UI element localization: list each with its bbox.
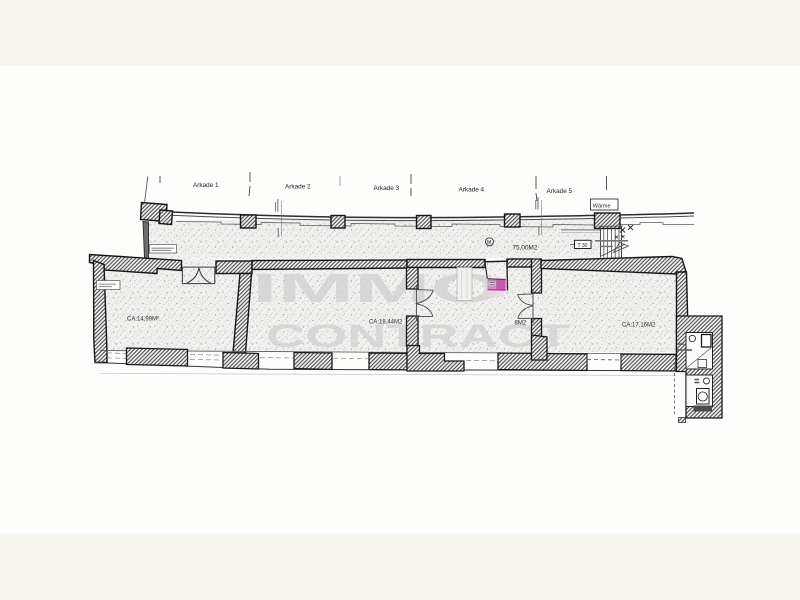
svg-text:Arkade 1: Arkade 1 bbox=[193, 182, 219, 189]
svg-text:CA:14,99M²: CA:14,99M² bbox=[127, 317, 159, 323]
svg-text:CA:17,16M2: CA:17,16M2 bbox=[622, 323, 656, 329]
svg-text:T 30: T 30 bbox=[578, 243, 588, 249]
svg-text:8M2: 8M2 bbox=[515, 321, 527, 327]
svg-text:Arkade 2: Arkade 2 bbox=[285, 184, 311, 191]
svg-text:Wärme: Wärme bbox=[593, 204, 611, 210]
svg-text:Arkade 5: Arkade 5 bbox=[547, 188, 573, 195]
svg-text:Arkade 3: Arkade 3 bbox=[374, 185, 400, 192]
svg-text:75,00M2: 75,00M2 bbox=[513, 245, 538, 252]
svg-text:M: M bbox=[487, 240, 491, 246]
svg-text:Arkade 4: Arkade 4 bbox=[459, 187, 485, 194]
svg-text:CA:18,44M2: CA:18,44M2 bbox=[369, 320, 403, 326]
